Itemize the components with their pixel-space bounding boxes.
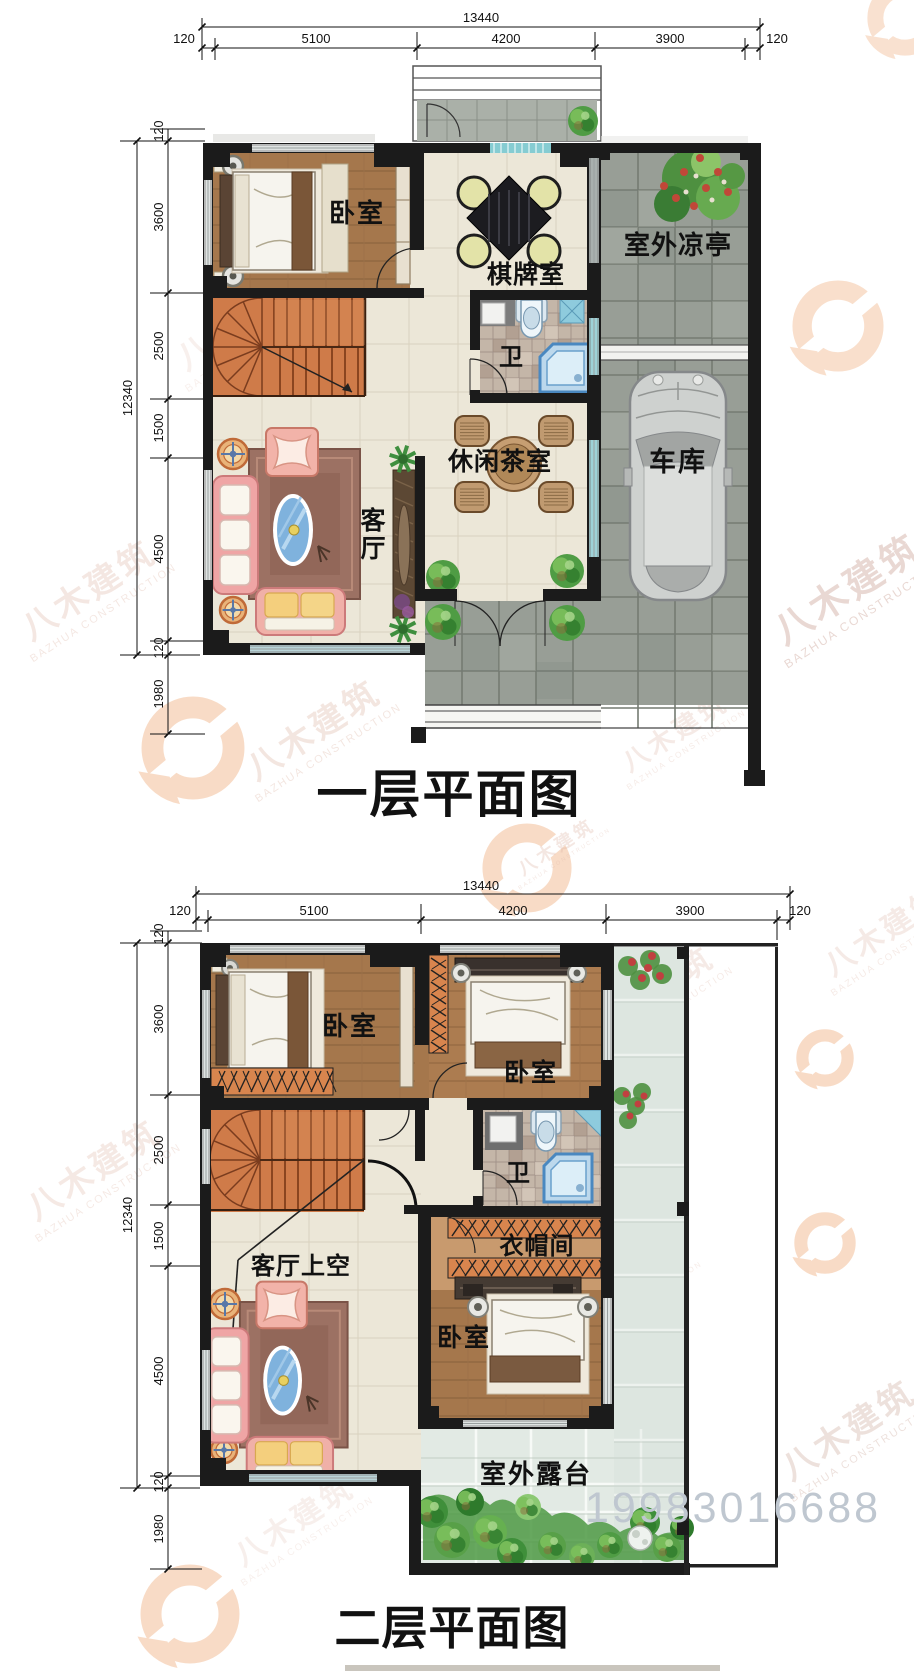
svg-text:3600: 3600 xyxy=(151,203,166,232)
svg-text:客厅上空: 客厅上空 xyxy=(251,1252,351,1280)
svg-text:衣帽间: 衣帽间 xyxy=(500,1232,575,1260)
svg-text:19983016688: 19983016688 xyxy=(585,1484,881,1532)
svg-text:客: 客 xyxy=(360,506,385,535)
svg-text:卫: 卫 xyxy=(506,1160,530,1187)
svg-text:4200: 4200 xyxy=(499,903,528,918)
svg-text:3600: 3600 xyxy=(151,1005,166,1034)
svg-text:120: 120 xyxy=(152,924,166,945)
svg-text:1500: 1500 xyxy=(151,1222,166,1251)
svg-text:5100: 5100 xyxy=(300,903,329,918)
svg-text:120: 120 xyxy=(152,1472,166,1493)
svg-text:120: 120 xyxy=(766,31,788,46)
svg-text:5100: 5100 xyxy=(302,31,331,46)
svg-text:棋牌室: 棋牌室 xyxy=(487,260,565,289)
svg-text:4500: 4500 xyxy=(151,1357,166,1386)
svg-text:120: 120 xyxy=(152,638,166,659)
svg-text:120: 120 xyxy=(789,903,811,918)
svg-text:车库: 车库 xyxy=(649,446,707,477)
svg-text:一层平面图: 一层平面图 xyxy=(316,766,581,823)
svg-text:厅: 厅 xyxy=(360,535,385,563)
svg-text:2500: 2500 xyxy=(151,1136,166,1165)
svg-text:120: 120 xyxy=(173,31,195,46)
svg-text:卧室: 卧室 xyxy=(322,1011,378,1041)
svg-text:室外露台: 室外露台 xyxy=(480,1459,592,1489)
svg-text:卫: 卫 xyxy=(499,344,523,371)
svg-text:2500: 2500 xyxy=(151,332,166,361)
svg-text:120: 120 xyxy=(152,121,166,142)
svg-text:1500: 1500 xyxy=(151,414,166,443)
svg-text:120: 120 xyxy=(169,903,191,918)
svg-text:3900: 3900 xyxy=(656,31,685,46)
svg-text:13440: 13440 xyxy=(463,878,499,893)
svg-text:12340: 12340 xyxy=(120,380,135,416)
svg-text:室外凉亭: 室外凉亭 xyxy=(624,230,732,260)
svg-text:卧室: 卧室 xyxy=(504,1058,558,1087)
svg-text:1980: 1980 xyxy=(151,680,166,709)
svg-text:4500: 4500 xyxy=(151,535,166,564)
svg-text:卧室: 卧室 xyxy=(329,198,385,228)
svg-text:二层平面图: 二层平面图 xyxy=(335,1602,570,1654)
svg-text:3900: 3900 xyxy=(676,903,705,918)
svg-text:休闲茶室: 休闲茶室 xyxy=(447,447,552,476)
svg-text:1980: 1980 xyxy=(151,1515,166,1544)
svg-text:4200: 4200 xyxy=(492,31,521,46)
svg-text:卧室: 卧室 xyxy=(437,1323,491,1352)
svg-text:13440: 13440 xyxy=(463,10,499,25)
svg-text:12340: 12340 xyxy=(120,1197,135,1233)
